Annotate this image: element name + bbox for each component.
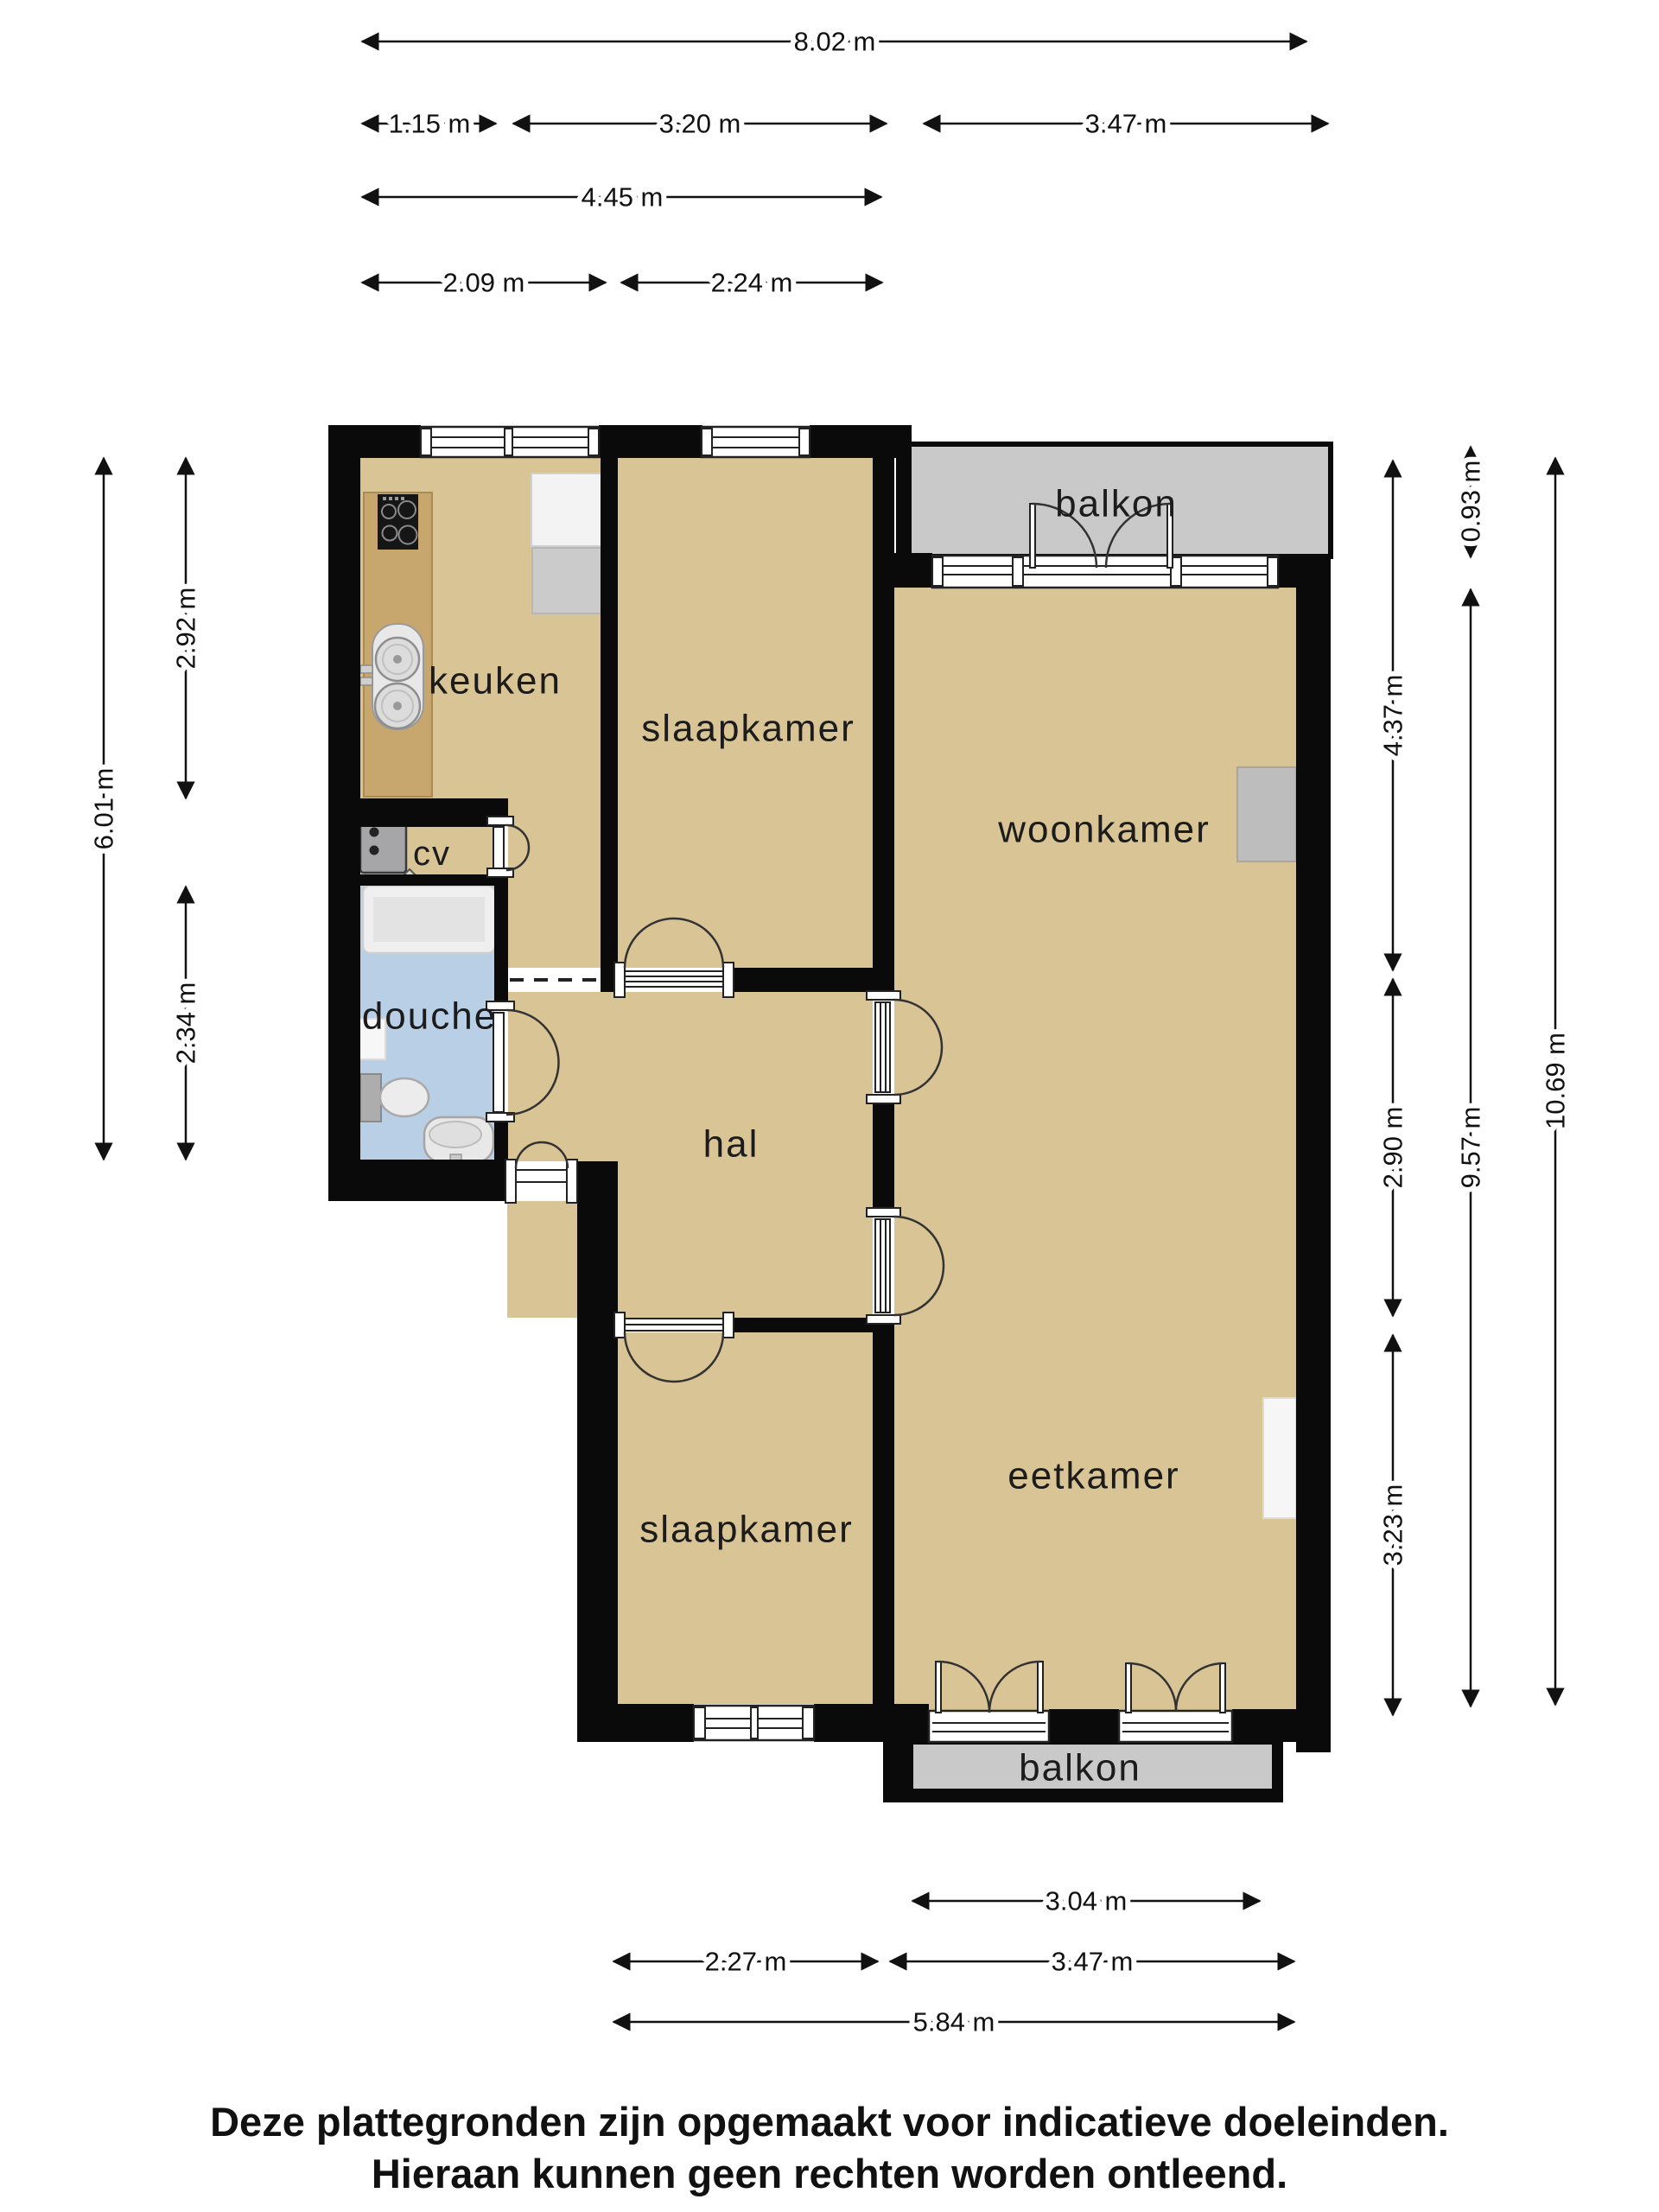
dim-label: 3.47 m [1052, 1947, 1134, 1977]
wall-band-right-pier [1278, 556, 1331, 588]
toilet-bowl-icon [380, 1078, 429, 1116]
dim-label: 4.45 m [582, 182, 664, 213]
wall-band-left-pier [912, 556, 932, 588]
wall-bottom-4 [1232, 1709, 1331, 1742]
wall-bottom-2 [814, 1704, 929, 1742]
cv-label: cv [413, 835, 451, 873]
dining-radiator [1263, 1398, 1296, 1518]
dimensions-top: 8.02 m 1.15 m 3.20 m 3.47 m 4.45 m 2.09 … [362, 27, 1328, 298]
dim-label: 6.01 m [89, 768, 119, 850]
wall-balcony-top-left [896, 425, 912, 557]
dimensions-right: 0.93 m 4.37 m 2.90 m 3.23 m 9.57 m 10.69… [1378, 447, 1571, 1715]
disclaimer-line-1: Deze plattegronden zijn opgemaakt voor i… [210, 2099, 1449, 2145]
wall-shower-bottom [328, 1160, 507, 1201]
bedroom2-label: slaapkamer [639, 1509, 853, 1551]
boiler-dot [370, 828, 379, 837]
dim-label: 8.02 m [794, 27, 876, 57]
kitchen-hall-opening [508, 968, 601, 992]
dim-label: 2.90 m [1378, 1107, 1408, 1189]
wall-kitchen-bedroom1 [601, 458, 618, 968]
living-dining-floor [894, 588, 1296, 1711]
wall-hall-right-lower [873, 1315, 894, 1719]
dim-label: 2.34 m [171, 982, 201, 1065]
french-door-leaf [1030, 504, 1035, 568]
wall-right [1296, 588, 1331, 1752]
shower-label: douche [362, 995, 497, 1038]
dim-label: 2.92 m [171, 588, 201, 670]
kitchen-appliance-white [531, 474, 601, 546]
wall-top-2 [599, 425, 702, 458]
dim-label: 10.69 m [1541, 1033, 1571, 1129]
dim-label: 2.24 m [711, 268, 793, 298]
floorplan-page: keuken slaapkamer woonkamer balkon cv do… [0, 0, 1659, 2212]
balcony-top-window-band [932, 556, 1278, 588]
balcony-bottom-label: balkon [1019, 1747, 1141, 1789]
balcony-bottom-left-wall [883, 1742, 913, 1802]
kitchen-label: keuken [429, 660, 562, 702]
toilet-tank [360, 1074, 381, 1122]
dim-label: 3.20 m [659, 109, 741, 139]
wall-shower-right-upper [494, 886, 508, 1010]
wall-hall-right-upper [873, 458, 894, 1000]
dim-label: 2.09 m [443, 268, 525, 298]
dimensions-bottom: 3.04 m 2.27 m 3.47 m 5.84 m [613, 1886, 1294, 2037]
wall-bottom-3 [1049, 1709, 1119, 1742]
dim-label: 5.84 m [913, 2007, 995, 2037]
floorplan-canvas: keuken slaapkamer woonkamer balkon cv do… [0, 0, 1659, 2212]
wall-top-3 [810, 425, 897, 458]
dim-label: 0.93 m [1456, 461, 1486, 543]
bedroom2-window [694, 1706, 814, 1740]
hall-label: hal [703, 1123, 760, 1166]
kitchen-appliance-gray [532, 548, 601, 613]
dim-label: 2.27 m [705, 1947, 787, 1977]
dimensions-left: 6.01 m 2.92 m 2.34 m [89, 458, 201, 1160]
shower-tray-inner [373, 897, 485, 942]
kitchen-window [421, 427, 599, 457]
dim-label: 3.04 m [1046, 1886, 1128, 1916]
balcony-bottom-right-wall [1272, 1742, 1283, 1802]
wall-cv-bottom [328, 874, 499, 886]
balcony-top-label: balkon [1055, 483, 1178, 525]
dim-label: 9.57 m [1456, 1107, 1486, 1189]
wall-bottom-1 [577, 1704, 694, 1742]
dim-label: 4.37 m [1378, 675, 1408, 757]
washbasin-inner [429, 1122, 481, 1147]
wall-hall-top [728, 968, 877, 992]
balcony-bottom-border [883, 1789, 1283, 1802]
dim-label: 1.15 m [389, 109, 471, 139]
bedroom1-label: slaapkamer [641, 708, 855, 750]
living-label: woonkamer [997, 809, 1210, 851]
dining-label: eetkamer [1007, 1455, 1179, 1497]
bedroom1-window [702, 427, 810, 457]
dim-label: 3.23 m [1378, 1484, 1408, 1567]
dim-label: 3.47 m [1085, 109, 1167, 139]
wall-hall-bottom [728, 1318, 877, 1332]
boiler-dot [370, 846, 379, 855]
wall-kitchen-bottom [328, 798, 507, 827]
living-cabinet [1237, 767, 1296, 861]
wall-entrance-side [577, 1161, 618, 1742]
disclaimer-line-2: Hieraan kunnen geen rechten worden ontle… [372, 2151, 1287, 2196]
wall-hall-right-mid [873, 1095, 894, 1217]
